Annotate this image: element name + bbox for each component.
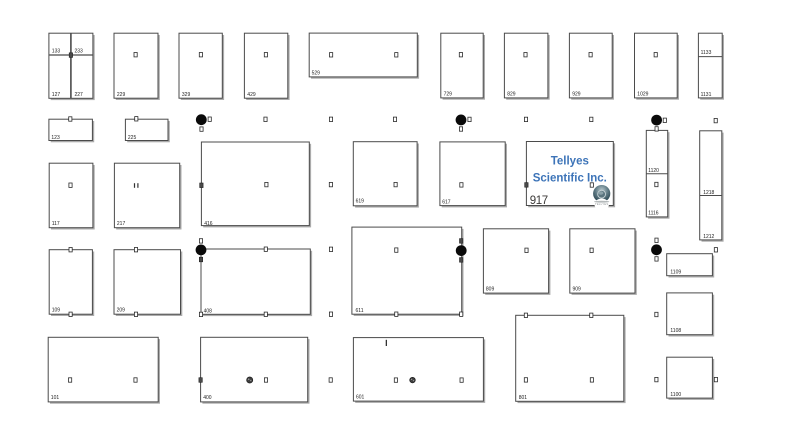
svg-text:1212: 1212 <box>703 234 714 240</box>
svg-text:829: 829 <box>507 92 516 98</box>
svg-text:400: 400 <box>203 395 212 401</box>
svg-text:1116: 1116 <box>648 210 659 216</box>
svg-text:Tellyes: Tellyes <box>551 155 589 167</box>
svg-text:1218: 1218 <box>703 190 714 196</box>
svg-text:133: 133 <box>52 49 61 55</box>
svg-text:1029: 1029 <box>637 92 648 98</box>
svg-text:529: 529 <box>312 70 321 76</box>
svg-text:123: 123 <box>51 135 60 141</box>
svg-text:429: 429 <box>247 92 256 98</box>
svg-text:117: 117 <box>52 221 60 227</box>
svg-text:127: 127 <box>52 92 61 98</box>
svg-text:1109: 1109 <box>670 269 681 275</box>
svg-text:101: 101 <box>51 395 60 401</box>
svg-text:233: 233 <box>75 49 84 55</box>
svg-text:801: 801 <box>519 395 528 401</box>
svg-text:229: 229 <box>117 92 126 98</box>
svg-text:TELLYES: TELLYES <box>595 202 608 206</box>
svg-text:225: 225 <box>128 135 137 141</box>
svg-text:1131: 1131 <box>701 92 712 98</box>
svg-text:329: 329 <box>182 92 191 98</box>
svg-text:601: 601 <box>356 395 365 401</box>
svg-text:909: 909 <box>573 287 582 293</box>
svg-text:809: 809 <box>486 287 495 293</box>
svg-text:619: 619 <box>356 199 365 205</box>
svg-text:617: 617 <box>442 199 451 205</box>
svg-text:416: 416 <box>204 221 213 227</box>
svg-text:1100: 1100 <box>670 392 681 398</box>
svg-text:408: 408 <box>204 308 213 314</box>
svg-text:1108: 1108 <box>670 328 681 334</box>
svg-text:209: 209 <box>117 308 126 314</box>
svg-text:109: 109 <box>52 308 61 314</box>
svg-text:217: 217 <box>117 221 126 227</box>
svg-text:729: 729 <box>444 92 453 98</box>
svg-text:Scientific Inc.: Scientific Inc. <box>533 173 607 185</box>
svg-text:1120: 1120 <box>648 168 659 174</box>
svg-text:1133: 1133 <box>701 50 712 56</box>
svg-text:227: 227 <box>75 92 84 98</box>
svg-text:611: 611 <box>356 308 364 314</box>
svg-text:917: 917 <box>530 195 548 207</box>
svg-text:929: 929 <box>572 92 581 98</box>
